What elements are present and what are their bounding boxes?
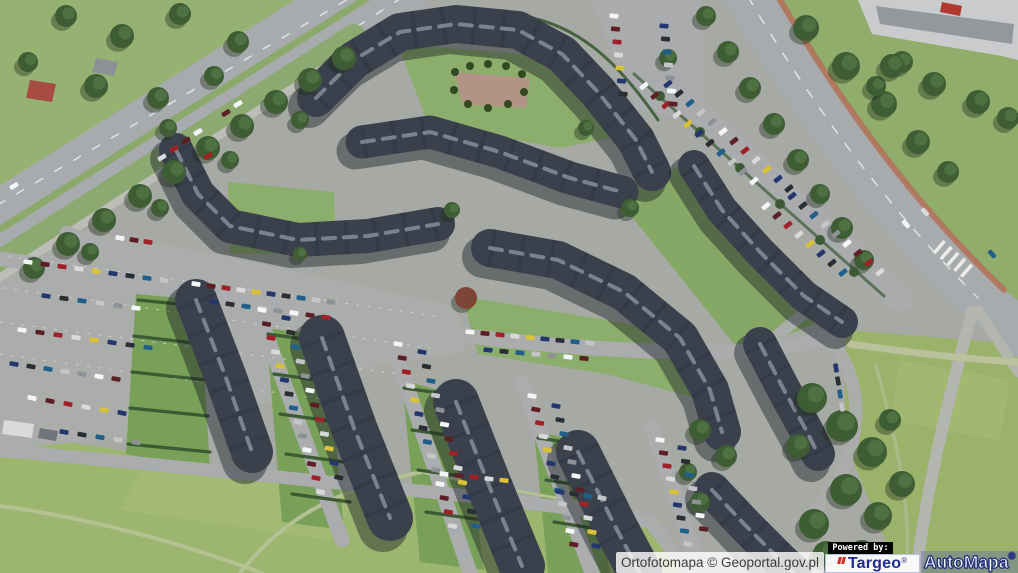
tree-crown (238, 116, 251, 129)
tree-crown (297, 113, 307, 123)
tree (451, 68, 459, 76)
car (664, 62, 673, 67)
tree-crown (177, 5, 189, 17)
tree-crown (817, 186, 828, 197)
car (662, 49, 671, 54)
car (617, 78, 626, 83)
tree-crown (584, 122, 593, 131)
car (563, 354, 572, 360)
car (555, 338, 564, 344)
tree (484, 60, 492, 68)
tree-crown (930, 74, 943, 87)
tree-crown (227, 153, 237, 163)
tree (455, 287, 477, 309)
tree-crown (298, 248, 306, 256)
car (499, 349, 508, 355)
tree (775, 199, 785, 209)
tree-crown (802, 18, 816, 32)
car (570, 339, 579, 345)
tree-crown (64, 234, 77, 247)
tree (450, 86, 458, 94)
tree-crown (627, 201, 637, 211)
automapa-logo[interactable]: AutoMapa® (921, 551, 1018, 573)
car (615, 65, 624, 70)
tree (815, 235, 825, 245)
car (483, 347, 492, 353)
car (515, 350, 524, 356)
tree-crown (839, 219, 851, 231)
targeo-wordmark: Targeo (848, 555, 901, 572)
powered-by-label: Powered by: (828, 542, 893, 554)
tree-crown (63, 7, 75, 19)
car (614, 52, 623, 57)
car (668, 101, 677, 106)
tree-crown (92, 76, 105, 89)
tree-crown (100, 210, 113, 223)
tree-crown (868, 440, 885, 457)
tree-crown (204, 138, 217, 151)
tree-crown (340, 48, 353, 61)
tree (520, 88, 528, 96)
tree (484, 104, 492, 112)
tree-crown (795, 151, 807, 163)
targeo-quote-icon (841, 557, 846, 564)
tree-crown (771, 115, 783, 127)
tree-crown (118, 26, 131, 39)
car (540, 336, 549, 342)
tree-crown (703, 8, 714, 19)
tree-crown (157, 201, 167, 211)
tree-crown (725, 43, 737, 55)
car (547, 353, 556, 359)
tree-crown (914, 132, 927, 145)
targeo-logo[interactable]: Targeo® (825, 554, 920, 573)
car (585, 340, 594, 346)
car (611, 26, 620, 31)
tree-crown (1005, 109, 1017, 121)
tree-crown (306, 70, 319, 83)
automapa-wordmark: AutoMapa (924, 552, 1009, 572)
tree-crown (723, 447, 735, 459)
registered-mark: ® (1008, 551, 1015, 561)
tree-crown (235, 33, 247, 45)
tree-crown (747, 79, 759, 91)
tree-crown (945, 163, 957, 175)
tree-crown (794, 436, 807, 449)
car (609, 13, 618, 18)
tree-crown (211, 68, 222, 79)
car (665, 75, 674, 80)
car (612, 39, 621, 44)
car (495, 332, 504, 338)
tree (504, 100, 512, 108)
tree-crown (841, 477, 859, 495)
car (465, 329, 474, 335)
car (480, 331, 489, 337)
car (667, 88, 676, 93)
tree-crown (888, 56, 901, 69)
tree-crown (974, 92, 987, 105)
tree-crown (898, 474, 912, 488)
tree (466, 62, 474, 70)
map-attribution: Ortofotomapa © Geoportal.gov.pl (616, 552, 824, 573)
car (525, 335, 534, 341)
tree-crown (837, 413, 855, 431)
tree-crown (170, 162, 183, 175)
car (531, 351, 540, 357)
car (659, 23, 668, 28)
car (579, 356, 588, 362)
tree-crown (810, 512, 827, 529)
tree-crown (880, 94, 894, 108)
tree-crown (450, 204, 459, 213)
car (510, 333, 519, 339)
tree-crown (155, 89, 167, 101)
tree (849, 267, 859, 277)
tree-crown (136, 186, 149, 199)
tree-crown (842, 55, 857, 70)
tree-crown (887, 411, 899, 423)
map-viewport: Ortofotomapa © Geoportal.gov.pl Powered … (0, 0, 1018, 573)
aerial-orthophoto-map[interactable] (0, 0, 1018, 573)
tree (502, 62, 510, 70)
tree-crown (697, 421, 709, 433)
tree-crown (808, 386, 825, 403)
tree-crown (87, 245, 97, 255)
tree-crown (25, 54, 36, 65)
car (618, 91, 627, 96)
tree-crown (272, 92, 285, 105)
car (661, 36, 670, 41)
registered-mark: ® (901, 556, 907, 566)
tree (518, 70, 526, 78)
tree-crown (874, 505, 889, 520)
tree (464, 100, 472, 108)
tree-crown (165, 121, 175, 131)
